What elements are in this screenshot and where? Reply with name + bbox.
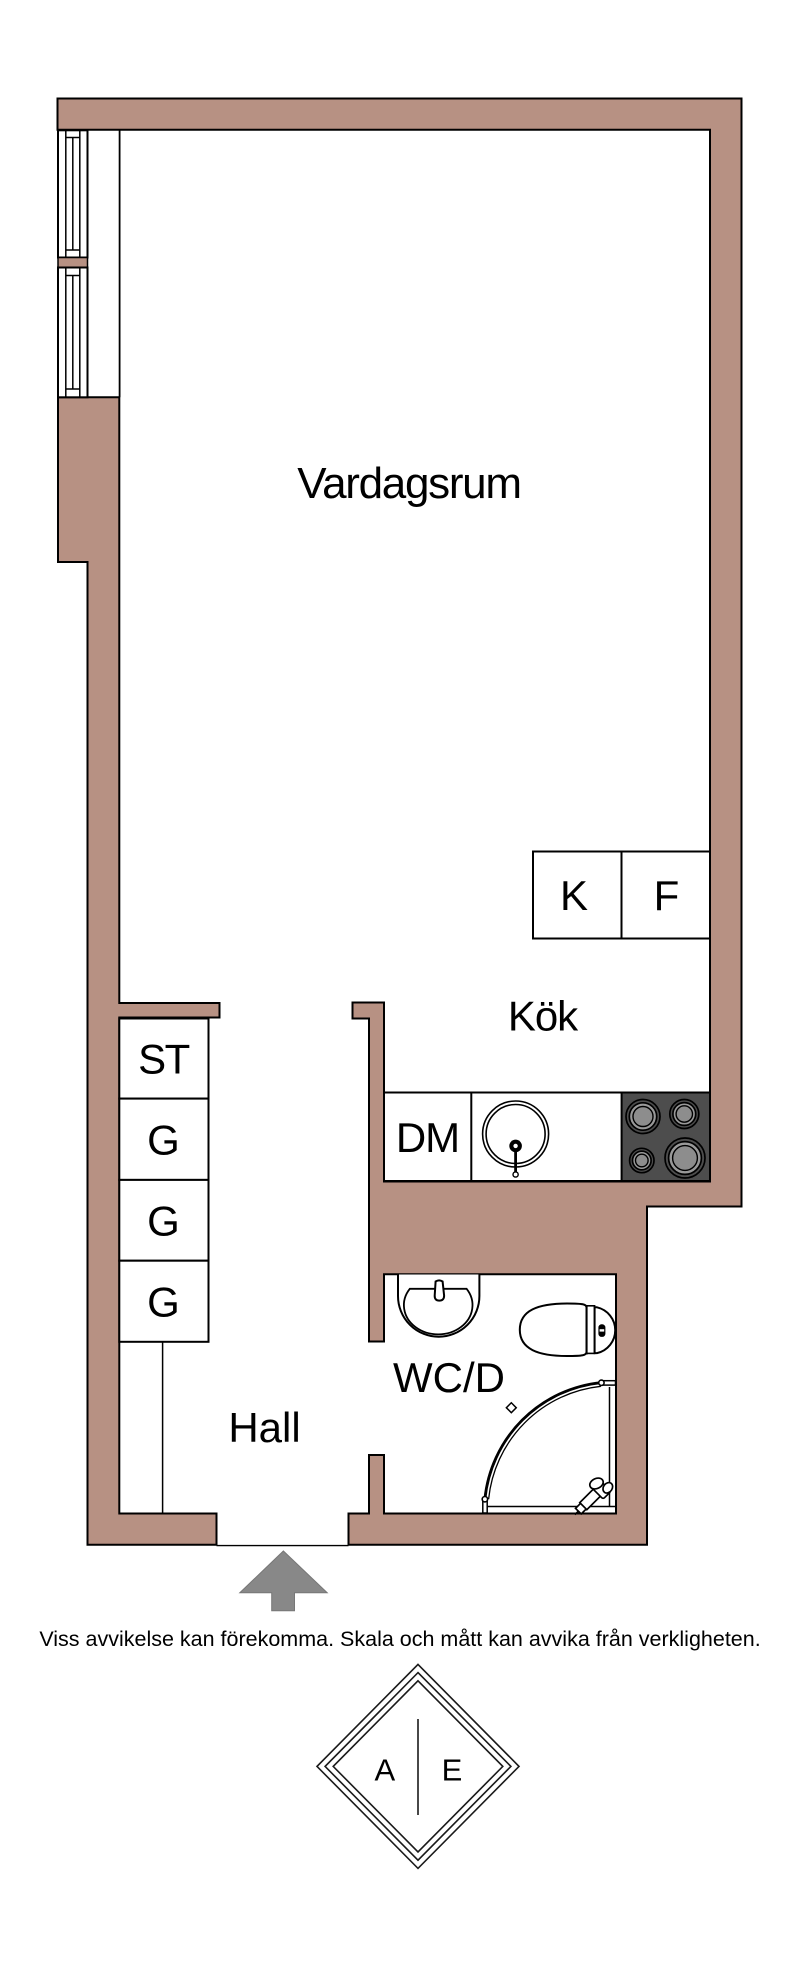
svg-text:Kök: Kök [508, 993, 579, 1040]
svg-text:Vardagsrum: Vardagsrum [297, 459, 520, 508]
svg-text:WC/D: WC/D [393, 1354, 505, 1401]
svg-text:DM: DM [396, 1114, 459, 1161]
svg-text:Viss avvikelse kan förekomma.: Viss avvikelse kan förekomma. Skala och … [39, 1627, 760, 1651]
svg-text:A: A [374, 1753, 395, 1788]
svg-text:ST: ST [138, 1036, 190, 1083]
svg-text:G: G [147, 1117, 180, 1164]
svg-text:G: G [147, 1279, 180, 1326]
svg-text:K: K [560, 872, 588, 919]
svg-text:E: E [442, 1753, 463, 1788]
svg-text:Hall: Hall [228, 1404, 300, 1451]
svg-text:F: F [654, 872, 680, 919]
svg-text:G: G [147, 1198, 180, 1245]
